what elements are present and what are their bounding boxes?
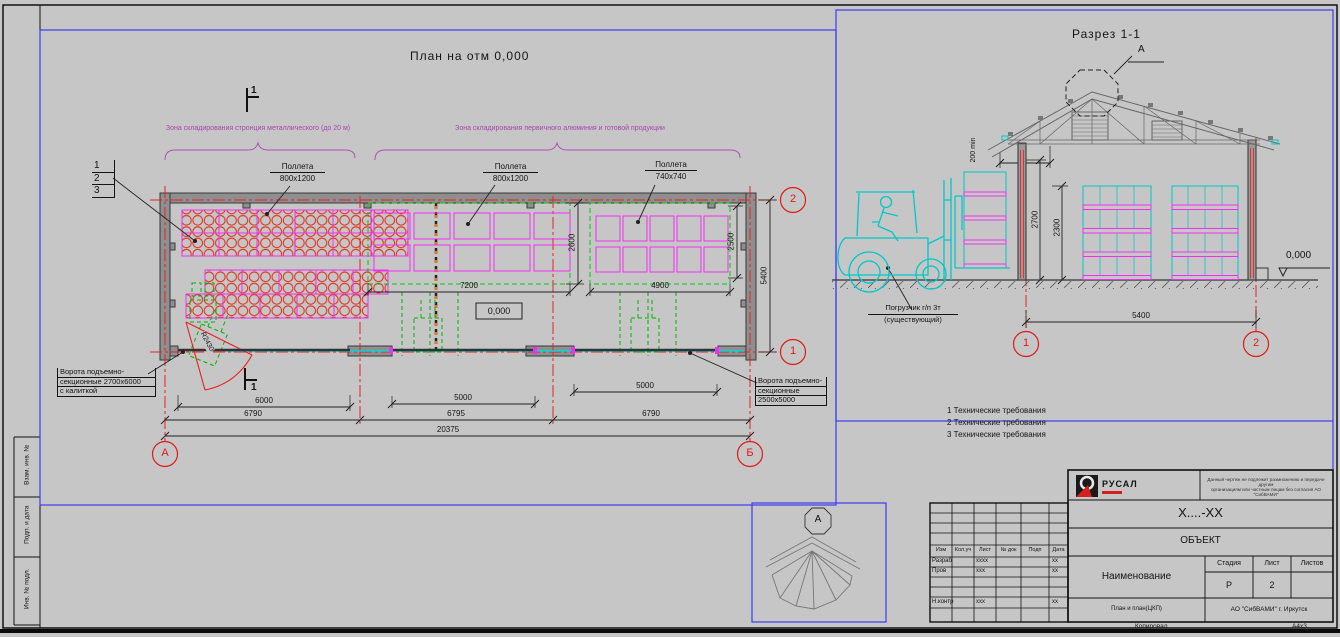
rusal-logo-text: РУСАЛ: [1102, 479, 1138, 489]
sheets-header: Листов: [1291, 560, 1333, 568]
dim-6795: 6795: [436, 409, 476, 418]
disclaimer-line2: организациям или частным лицам без согла…: [1202, 487, 1330, 498]
rev-row1-role: Разраб: [932, 558, 952, 565]
rev-h-doc: № док: [996, 547, 1021, 553]
stage-value: Р: [1205, 580, 1253, 590]
ref-2: 2: [92, 173, 114, 186]
dim-2300: 2300: [1052, 208, 1061, 248]
dim-7200: 7200: [449, 281, 489, 290]
pallet-label-1-line1: Поллета: [270, 162, 325, 173]
dim-6790-b: 6790: [631, 409, 671, 418]
pallet-label-1-line2: 800x1200: [270, 174, 325, 183]
rev-h-izm: Изм: [930, 547, 952, 553]
gate-right-line3: 2500x5000: [756, 396, 826, 405]
rev-h-data: Дата: [1049, 547, 1068, 553]
forklift-label-line1: Погрузчик г/п 3т: [868, 304, 958, 315]
company-label: АО "СибВАМИ" г. Иркутск: [1205, 606, 1333, 613]
section-axis-marker-2: 2: [1243, 337, 1269, 349]
gate-right-label: Ворота подъемно- секционные 2500x5000: [755, 377, 827, 406]
doc-code: Х....-ХХ: [1068, 506, 1333, 521]
zone-label-right: Зона складирования первичного алюминия и…: [420, 125, 700, 133]
dim-2500: 2500: [726, 222, 735, 262]
rev-h-list: Лист: [974, 547, 996, 553]
tech-req-2: 2 Технические требования: [947, 418, 1046, 427]
sheet-header: Лист: [1253, 560, 1291, 568]
dim-min: min: [970, 138, 977, 149]
rev-h-koluch: Кол.уч: [952, 547, 974, 553]
margin-label-podp: Подп. и дата: [23, 496, 30, 554]
rev-row1-date: xx: [1052, 558, 1058, 565]
zone-label-left: Зона складирования стронция металлическо…: [137, 125, 379, 133]
gate-leaves: [178, 347, 719, 354]
plan-elevation-label: 0,000: [477, 306, 521, 316]
margin-label-inv: Инв. № подл.: [23, 560, 30, 618]
gate-left-label: Ворота подъемно- секционные 2700x6000 с …: [57, 368, 156, 397]
disclaimer-line1: Данный чертеж не подлежит размножению и …: [1202, 477, 1330, 488]
section-axis-marker-1: 1: [1013, 337, 1039, 349]
plan-title: План на отм 0,000: [410, 50, 529, 64]
crate-stacks: [964, 172, 1238, 280]
rev-h-podp: Подп: [1021, 547, 1049, 553]
forklift-label-line2: (существующий): [868, 316, 958, 325]
dim-5400-section: 5400: [1121, 311, 1161, 320]
section-ground: [832, 280, 1318, 289]
sheet-value: 2: [1253, 580, 1291, 590]
dim-6000: 6000: [244, 396, 284, 405]
copied-label: Копировал: [1135, 623, 1168, 630]
dim-20375: 20375: [426, 425, 470, 434]
rev-row1-name: xxxx: [976, 558, 988, 565]
section-elevation-mark: [1279, 268, 1330, 276]
tech-req-3: 3 Технические требования: [947, 430, 1046, 439]
dim-2700: 2700: [1030, 200, 1039, 240]
dim-5000-b: 5000: [625, 381, 665, 390]
rev-row2-role: Пров: [932, 568, 946, 575]
rev-row3-date: xx: [1052, 599, 1058, 606]
rev-row3-name: xxx: [976, 599, 985, 606]
tech-req-1: 1 Технические требования: [947, 406, 1046, 415]
axis-marker-a: А: [152, 447, 178, 459]
format-label: А4х3: [1292, 623, 1307, 630]
dim-6790-a: 6790: [233, 409, 273, 418]
stage-header: Стадия: [1205, 560, 1253, 568]
forklift: [838, 178, 1010, 292]
axis-marker-2: 2: [780, 193, 806, 205]
drawing-sheet: План на отм 0,000 Разрез 1-1 Зона склади…: [0, 0, 1340, 637]
cut-mark-bottom: 1: [251, 382, 257, 394]
dim-4900: 4900: [640, 281, 680, 290]
ref-3: 3: [92, 185, 114, 198]
ref-1: 1: [92, 160, 114, 173]
pallet-label-3-line1: Поллета: [645, 160, 697, 171]
dim-200: 200: [970, 151, 977, 163]
detail-ref-label: А: [1138, 44, 1145, 56]
cut-mark-top: 1: [251, 85, 257, 97]
pallet-label-2-line1: Поллета: [483, 162, 538, 173]
reference-number-stack: 1 2 3: [92, 160, 115, 198]
dim-2600: 2600: [567, 223, 576, 263]
rev-row2-name: xxx: [976, 568, 985, 575]
detail-badge-label: А: [805, 514, 831, 525]
axis-marker-1: 1: [780, 345, 806, 357]
pallet-zone-right: [590, 203, 730, 284]
margin-label-vzam: Взам. инв. №: [23, 436, 30, 494]
dim-5000-a: 5000: [443, 393, 483, 402]
rev-row3-role: Н.контр: [932, 599, 953, 606]
sheet-content-label: План и план(ЦКП): [1068, 606, 1205, 613]
dim-200-min: 200 min: [970, 128, 978, 172]
rev-row2-date: xx: [1052, 568, 1058, 575]
section-elevation-label: 0,000: [1286, 250, 1311, 262]
axis-marker-b: Б: [737, 447, 763, 459]
dim-5400-plan: 5400: [759, 256, 768, 296]
section-title: Разрез 1-1: [1072, 28, 1141, 42]
pallet-label-3-line2: 740x740: [645, 172, 697, 181]
pallet-label-2-line2: 800x1200: [483, 174, 538, 183]
gate-left-line3: с калиткой: [58, 387, 155, 396]
zone-braces: [165, 143, 740, 160]
roof-truss: [988, 92, 1280, 157]
object-label: ОБЪЕКТ: [1068, 535, 1333, 547]
name-label: Наименование: [1068, 571, 1205, 583]
